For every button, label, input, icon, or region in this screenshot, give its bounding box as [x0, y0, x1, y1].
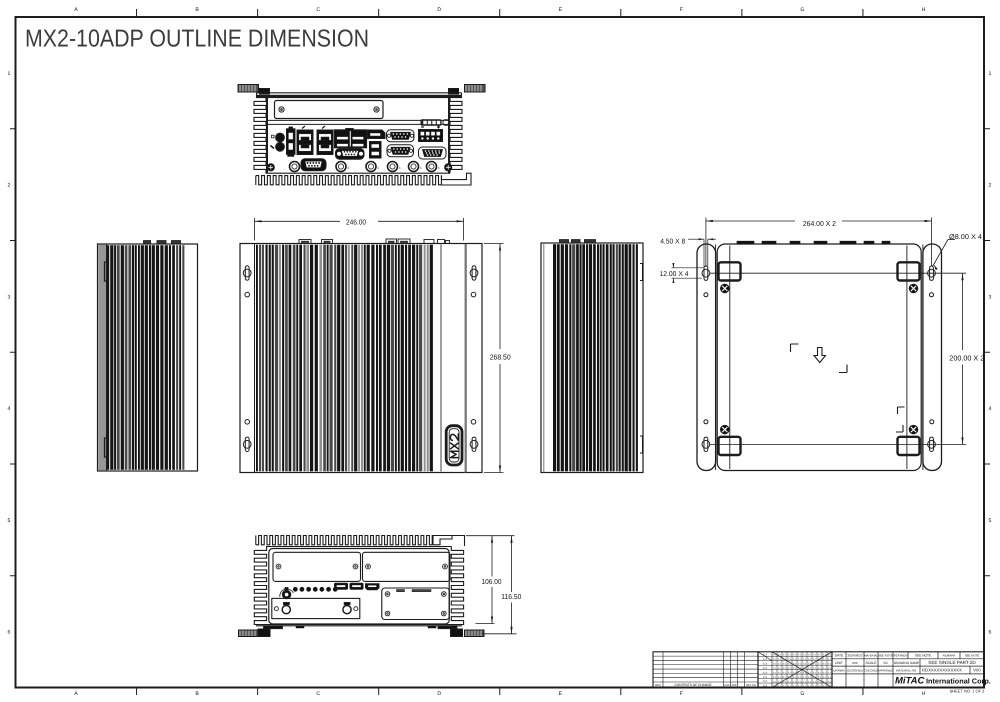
svg-text:UNIT: UNIT [835, 661, 843, 665]
svg-text:REV: REV [655, 683, 661, 687]
svg-text:MX2-10ADP OUTLINE DIMENSION: MX2-10ADP OUTLINE DIMENSION [25, 26, 369, 53]
svg-text:3: 3 [989, 294, 992, 300]
svg-text:X.X: X.X [763, 680, 767, 683]
svg-text:X.X: X.X [763, 667, 767, 670]
svg-text:F: F [680, 691, 683, 697]
svg-text:1/1: 1/1 [883, 661, 888, 665]
svg-text:XXXXXXXXXXXX: XXXXXXXXXXXX [928, 668, 962, 673]
svg-text:D: D [437, 691, 441, 697]
svg-text:X.X: X.X [763, 653, 767, 656]
svg-text:2: 2 [8, 183, 11, 189]
svg-text:E: E [559, 691, 563, 697]
svg-text:G: G [800, 691, 804, 697]
svg-text:Ø8.00 X 4: Ø8.00 X 4 [949, 233, 982, 241]
svg-text:4: 4 [8, 406, 11, 412]
svg-text:4: 4 [438, 166, 440, 170]
svg-text:H: H [922, 7, 926, 13]
svg-text:mm: mm [852, 661, 858, 665]
svg-text:200.00 X 2: 200.00 X 2 [949, 354, 984, 363]
svg-text:A: A [74, 691, 78, 697]
svg-text:X.X: X.X [763, 685, 767, 688]
svg-text:SEE SINGLE PART 2D: SEE SINGLE PART 2D [928, 660, 976, 665]
svg-text:3: 3 [8, 294, 11, 300]
svg-text:4: 4 [377, 166, 379, 170]
svg-text:REMARK: REMARK [943, 654, 956, 658]
svg-text:C: C [316, 7, 320, 13]
svg-text:X.X: X.X [763, 676, 767, 679]
svg-text:5: 5 [8, 518, 11, 524]
svg-text:E: E [559, 7, 563, 13]
svg-text:MATERIAL: MATERIAL [864, 654, 878, 658]
svg-text:X.X: X.X [763, 671, 767, 674]
svg-text:SEE NOTE: SEE NOTE [965, 654, 980, 658]
svg-text:DRAWING NAME: DRAWING NAME [894, 661, 919, 665]
svg-text:6: 6 [989, 630, 992, 636]
svg-text:REV-NO: REV-NO [746, 684, 756, 687]
svg-text:RD: RD [922, 668, 928, 673]
svg-text:SEE NOTE: SEE NOTE [915, 654, 931, 658]
svg-text:APPROVED: APPROVED [878, 668, 894, 672]
svg-text:5: 5 [989, 518, 992, 524]
svg-text:2: 2 [989, 183, 992, 189]
svg-text:268.50: 268.50 [490, 353, 511, 362]
svg-text:1: 1 [989, 71, 992, 77]
svg-text:4: 4 [989, 406, 992, 412]
svg-text:MiTAC: MiTAC [895, 676, 925, 687]
svg-text:1: 1 [8, 71, 11, 77]
svg-text:SCALE: SCALE [865, 661, 877, 665]
svg-text:D: D [437, 7, 441, 13]
svg-text:4: 4 [347, 166, 349, 170]
svg-text:V00: V00 [973, 668, 981, 673]
svg-text:X.X: X.X [763, 658, 767, 661]
svg-text:116.50: 116.50 [501, 592, 521, 601]
svg-text:CONTENTS OF CHANGE: CONTENTS OF CHANGE [674, 683, 711, 687]
svg-text:B: B [195, 7, 199, 13]
svg-text:H: H [922, 691, 926, 697]
svg-text:X.X: X.X [763, 662, 767, 665]
svg-text:SHEET NO. 1 OF 2: SHEET NO. 1 OF 2 [950, 689, 986, 694]
svg-text:A: A [74, 7, 78, 13]
svg-text:B: B [195, 691, 199, 697]
svg-text:4: 4 [399, 166, 401, 170]
svg-text:6: 6 [8, 630, 11, 636]
svg-text:12.00 X 4: 12.00 X 4 [660, 271, 689, 278]
svg-text:CHK: CHK [724, 684, 730, 687]
svg-text:DRAWN: DRAWN [833, 668, 844, 672]
svg-text:264.00 X 2: 264.00 X 2 [803, 219, 836, 228]
svg-text:G: G [800, 7, 804, 13]
svg-text:TREATMENT: TREATMENT [892, 655, 909, 658]
svg-text:4: 4 [420, 166, 422, 170]
svg-text:4.50 X 8: 4.50 X 8 [660, 239, 685, 246]
svg-text:SEE NOTE: SEE NOTE [878, 654, 893, 658]
svg-text:APP: APP [731, 684, 736, 687]
svg-text:International Corp.: International Corp. [926, 677, 991, 686]
svg-text:246.00: 246.00 [346, 217, 366, 226]
svg-text:MATERIAL NO.: MATERIAL NO. [896, 668, 917, 672]
svg-text:DESIGNED: DESIGNED [847, 668, 864, 672]
svg-text:2024/08/23: 2024/08/23 [847, 654, 862, 658]
svg-text:106.00: 106.00 [482, 577, 502, 586]
svg-text:C: C [316, 691, 320, 697]
svg-text:F: F [680, 7, 683, 13]
svg-text:DATE: DATE [835, 654, 845, 658]
